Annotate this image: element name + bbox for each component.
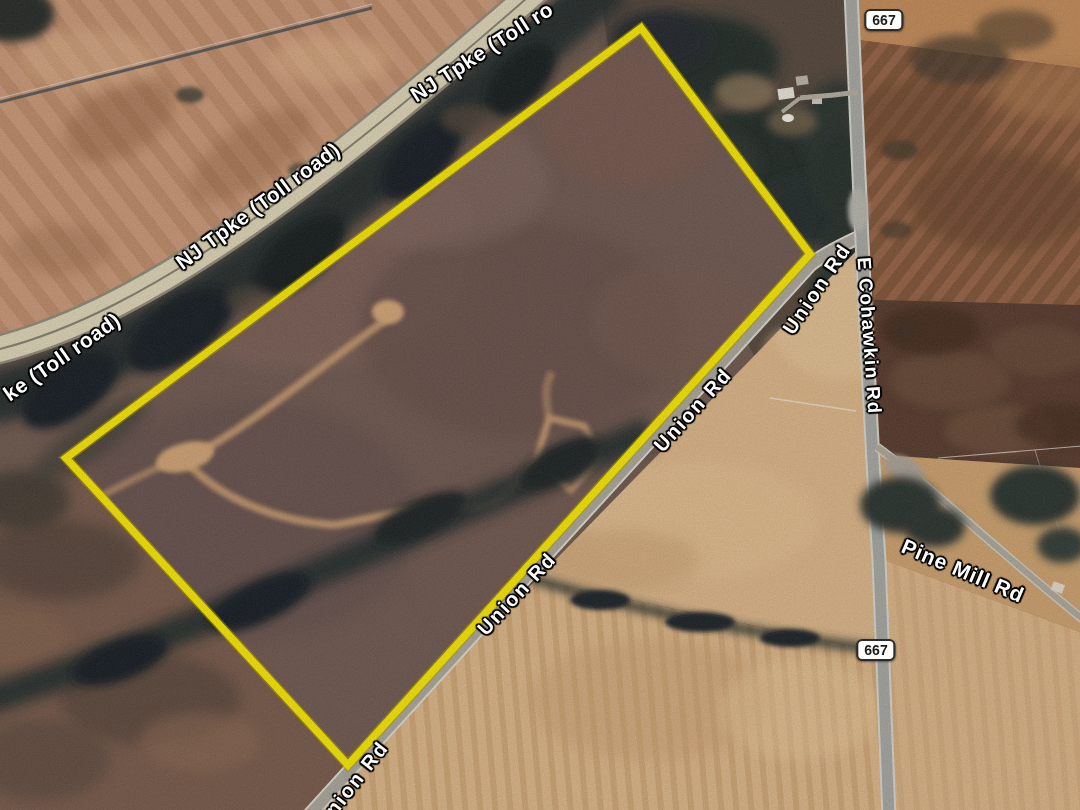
satellite-map-canvas[interactable]: ke (Toll road) NJ Tpke (Toll road) NJ Tp… (0, 0, 1080, 810)
aerial-imagery (0, 0, 1080, 810)
grain-overlay-light (0, 0, 1080, 810)
